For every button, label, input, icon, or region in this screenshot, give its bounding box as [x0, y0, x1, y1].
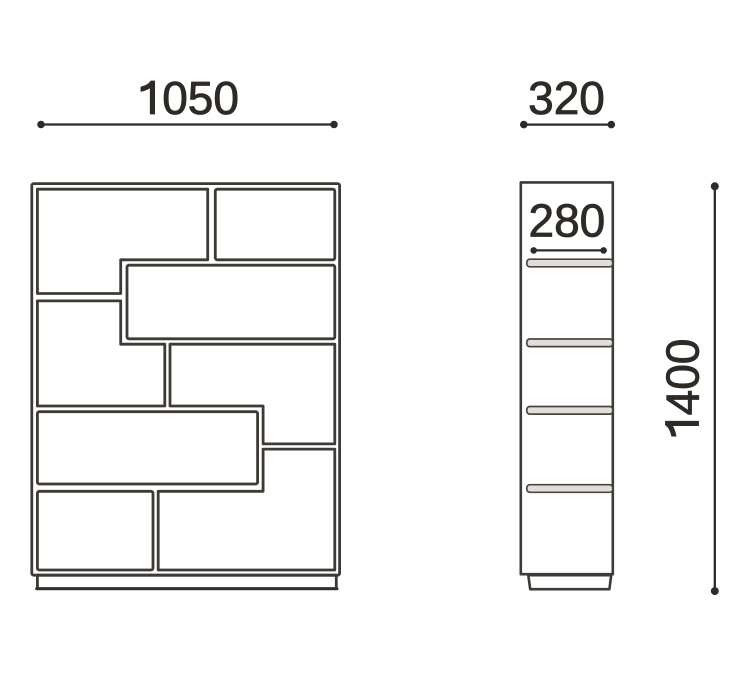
- svg-text:050: 050: [162, 72, 239, 124]
- svg-text:400: 400: [657, 339, 709, 416]
- svg-text:320: 320: [528, 72, 605, 124]
- svg-text:280: 280: [529, 194, 606, 246]
